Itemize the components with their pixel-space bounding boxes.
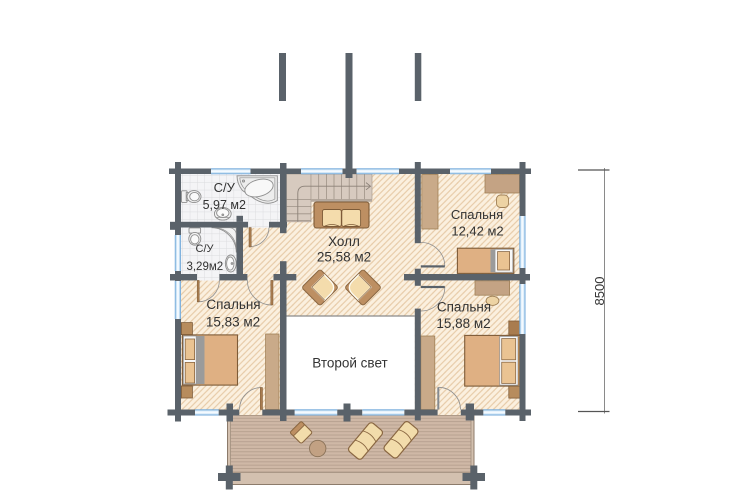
svg-text:3,29м2: 3,29м2 <box>186 261 223 273</box>
svg-text:Спальня: Спальня <box>451 207 503 222</box>
svg-text:Второй свет: Второй свет <box>312 356 387 371</box>
svg-text:Холл: Холл <box>328 234 360 249</box>
svg-text:15,88 м2: 15,88 м2 <box>436 316 490 331</box>
svg-text:15,83 м2: 15,83 м2 <box>206 315 260 330</box>
svg-text:С/У: С/У <box>196 243 215 255</box>
svg-text:8500: 8500 <box>592 277 607 306</box>
svg-text:5,97 м2: 5,97 м2 <box>203 198 246 212</box>
svg-text:12,42 м2: 12,42 м2 <box>451 224 503 239</box>
svg-text:Спальня: Спальня <box>206 297 260 312</box>
svg-text:С/У: С/У <box>214 180 236 195</box>
svg-text:25,58 м2: 25,58 м2 <box>317 250 371 265</box>
svg-text:Спальня: Спальня <box>437 300 491 315</box>
